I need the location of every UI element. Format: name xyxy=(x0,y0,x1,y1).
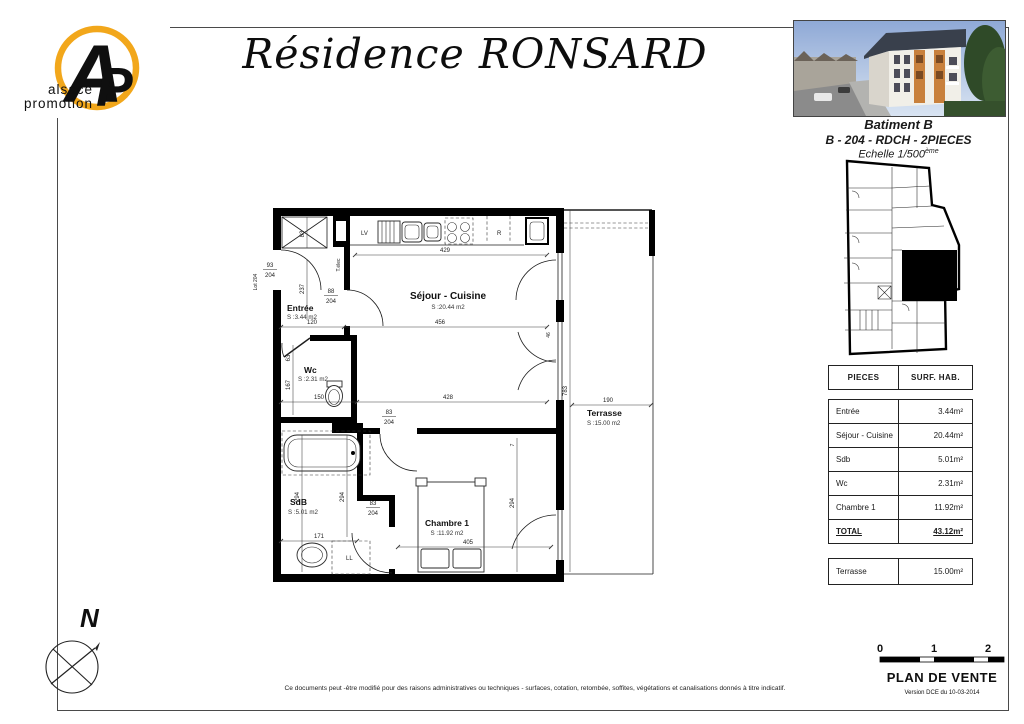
page-title: Résidence RONSARD xyxy=(240,30,710,78)
table-row: Entrée 3.44m² xyxy=(829,400,972,423)
table-row: Wc 2.31m² xyxy=(829,471,972,495)
svg-text:204: 204 xyxy=(368,511,379,517)
washbasin-icon xyxy=(297,543,327,567)
plan-de-vente-block: 0 1 2 PLAN DE VENTE Version DCE du 10-03… xyxy=(870,636,1005,706)
dim-label: 456 xyxy=(435,320,446,326)
scale-tick-1: 1 xyxy=(931,643,937,655)
photo-car xyxy=(814,93,832,101)
dim-label: 294 xyxy=(340,491,346,502)
dim-label: 190 xyxy=(603,398,614,404)
dim-label: 237 xyxy=(300,283,306,294)
alsace-promotion-logo: A P alsace promotion xyxy=(0,16,170,118)
dim-label: 167 xyxy=(286,379,292,390)
svg-text:Lot 204: Lot 204 xyxy=(253,273,259,290)
header-surf-hab: SURF. HAB. xyxy=(899,366,972,389)
dim-label: 63 xyxy=(286,354,292,361)
dim-label: 7 xyxy=(510,443,516,446)
svg-text:88: 88 xyxy=(328,289,335,295)
door-tag-lot: Lot 204 93 204 xyxy=(253,263,277,290)
key-plan-unit-highlight xyxy=(902,250,957,301)
svg-text:Séjour - Cuisine: Séjour - Cuisine xyxy=(410,291,487,302)
room-label-chambre: Chambre 1 S :11.92 m2 xyxy=(425,518,469,537)
door-tag-sdb: 83 204 xyxy=(366,501,380,517)
label-r: R xyxy=(497,231,502,237)
door-tag-chambre: 83 204 xyxy=(382,410,396,426)
room-label-sdb: SdB S :5.01 m2 xyxy=(288,497,318,516)
scale-tick-0: 0 xyxy=(877,643,883,655)
svg-text:S :5.01 m2: S :5.01 m2 xyxy=(288,509,318,516)
svg-text:S :15.00 m2: S :15.00 m2 xyxy=(587,420,621,427)
scale-bar-icon xyxy=(880,657,1004,662)
svg-text:S :11.92 m2: S :11.92 m2 xyxy=(431,530,464,537)
building-key-plan xyxy=(822,158,992,360)
door-tag-entree: 88 204 xyxy=(324,289,338,305)
svg-text:Chambre 1: Chambre 1 xyxy=(425,518,469,528)
table-row: Chambre 1 11.92m² xyxy=(829,495,972,519)
dim-label: 83 xyxy=(300,230,306,237)
svg-text:Wc: Wc xyxy=(304,365,317,375)
disclaimer-text: Ce documents peut -être modifié pour des… xyxy=(180,685,890,692)
svg-text:Terrasse: Terrasse xyxy=(587,408,622,418)
table-terrasse: Terrasse 15.00m² xyxy=(828,558,973,585)
svg-text:SdB: SdB xyxy=(290,497,307,507)
dim-label: 46 xyxy=(546,332,552,338)
svg-text:S :3.44 m2: S :3.44 m2 xyxy=(287,314,317,321)
svg-text:204: 204 xyxy=(384,420,395,426)
compass-north-label: N xyxy=(80,603,100,633)
header-pieces: PIECES xyxy=(829,366,899,389)
kitchen-counter-icon xyxy=(350,216,548,245)
logo-text-alsace: alsace xyxy=(48,82,93,97)
bathtub-icon xyxy=(282,431,370,475)
building-photo xyxy=(793,20,1006,117)
label-telec: T.élec xyxy=(336,258,342,272)
version-text: Version DCE du 10-03-2014 xyxy=(904,690,980,696)
caption-unit: B - 204 - RDCH - 2PIECES xyxy=(793,133,1004,148)
plan-de-vente-title: PLAN DE VENTE xyxy=(887,670,998,685)
dim-label: 171 xyxy=(314,534,325,540)
logo-text-promotion: promotion xyxy=(24,96,93,111)
svg-text:204: 204 xyxy=(326,299,337,305)
label-lv: LV xyxy=(361,231,368,237)
dim-label: 429 xyxy=(440,248,451,254)
photo-caption: Batiment B B - 204 - RDCH - 2PIECES Eche… xyxy=(793,117,1004,163)
svg-text:S :2.31 m2: S :2.31 m2 xyxy=(298,376,328,383)
table-row: Sdb 5.01m² xyxy=(829,447,972,471)
svg-text:83: 83 xyxy=(386,410,393,416)
svg-text:204: 204 xyxy=(265,273,276,279)
svg-text:S :20.44 m2: S :20.44 m2 xyxy=(431,304,465,311)
table-row: Séjour - Cuisine 20.44m² xyxy=(829,423,972,447)
dim-label: 294 xyxy=(510,497,516,508)
table-row: Terrasse 15.00m² xyxy=(829,559,972,584)
caption-building: Batiment B xyxy=(793,117,1004,133)
logo-icon: A P alsace promotion xyxy=(0,16,170,118)
scale-tick-2: 2 xyxy=(985,643,991,655)
room-label-entree: Entrée S :3.44 m2 xyxy=(287,303,317,321)
dim-label: 428 xyxy=(443,395,454,401)
table-total-row: TOTAL 43.12m² xyxy=(829,519,972,543)
svg-text:83: 83 xyxy=(370,501,377,507)
dim-label: 405 xyxy=(463,540,474,546)
table-header: PIECES SURF. HAB. xyxy=(828,365,973,390)
table-body: Entrée 3.44m² Séjour - Cuisine 20.44m² S… xyxy=(828,399,973,544)
terrasse-outline xyxy=(564,210,655,574)
surface-table: PIECES SURF. HAB. Entrée 3.44m² Séjour -… xyxy=(828,365,973,585)
svg-text:Entrée: Entrée xyxy=(287,303,314,313)
toilet-icon xyxy=(326,381,343,407)
logo-letter-p: P xyxy=(96,56,133,118)
room-label-terrasse: Terrasse S :15.00 m2 xyxy=(587,408,622,427)
dim-label: 783 xyxy=(563,385,569,396)
label-ll: LL xyxy=(346,556,353,562)
dim-label: 150 xyxy=(314,395,325,401)
plan-de-vente-document: { "header": { "title": "Résidence RONSAR… xyxy=(0,0,1024,724)
floor-plan: 429 120 456 150 428 171 405 190 83 237 6… xyxy=(240,185,680,605)
room-label-wc: Wc S :2.31 m2 xyxy=(298,365,328,383)
room-label-sejour: Séjour - Cuisine S :20.44 m2 xyxy=(410,291,487,311)
svg-text:93: 93 xyxy=(267,263,274,269)
north-compass-icon: N xyxy=(38,595,133,705)
